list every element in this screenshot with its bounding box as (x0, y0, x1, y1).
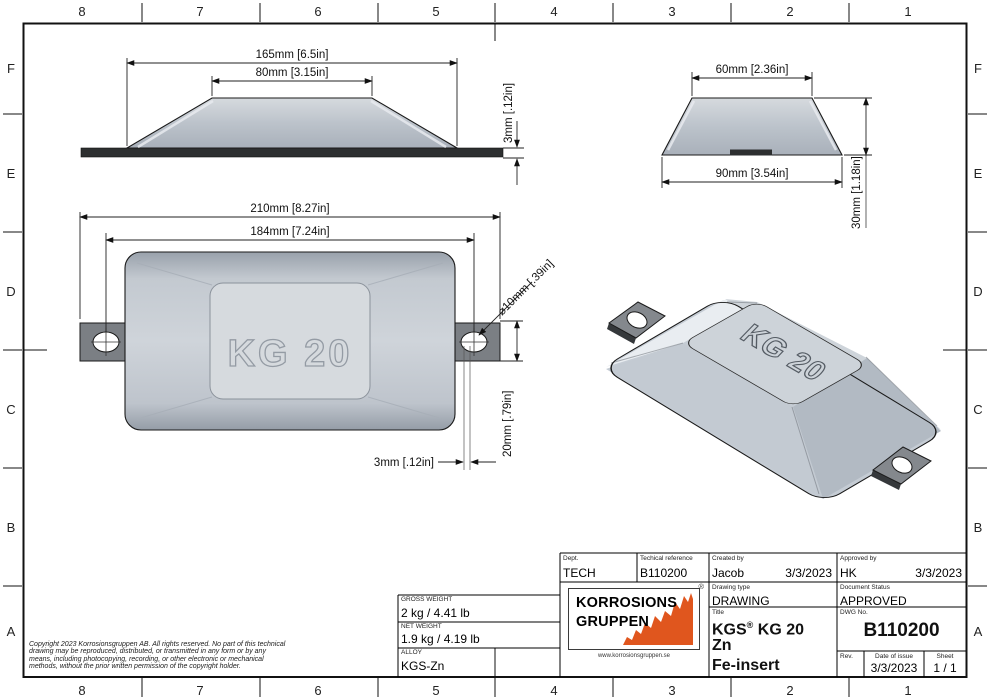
created-date: 3/3/2023 (785, 566, 832, 580)
logo-website: www.korrosionsgruppen.se (568, 653, 700, 659)
grid-row-label: C (6, 402, 15, 417)
alloy-value: KGS-Zn (401, 659, 444, 673)
dwg-no-label: DWG No. (840, 609, 868, 616)
grid-col-label: 8 (78, 683, 85, 698)
dim-side-height: 30mm [1.18in] (851, 156, 863, 229)
doc-status-label: Document Status (840, 584, 890, 591)
alloy-label: ALLOY (401, 649, 422, 656)
side-fe-insert-strip (730, 150, 772, 156)
grid-col-label: 4 (550, 683, 557, 698)
approved-by-label: Approved by (840, 555, 877, 562)
dim-side-top: 60mm [2.36in] (716, 64, 789, 76)
dim-plan-tab: 20mm [.79in] (502, 391, 514, 457)
dim-plan-hole-span: 184mm [7.24in] (250, 226, 329, 238)
dim-plan-overall: 210mm [8.27in] (250, 203, 329, 215)
dim-plan-hole-dia: ⌀10mm [.39in] (496, 258, 556, 318)
title-line3: Fe-insert (712, 656, 780, 676)
grid-row-label: B (7, 520, 16, 535)
grid-col-label: 2 (786, 683, 793, 698)
created-by-value: Jacob (712, 566, 744, 580)
side-view: 60mm [2.36in] 90mm [3.54in] 30mm [1.18in… (662, 64, 872, 229)
grid-row-label: A (974, 624, 983, 639)
front-view: 165mm [6.5in] 80mm [3.15in] 3mm [.12in] (81, 49, 524, 185)
copyright-notice: Copyright 2023 Korrosionsgruppen AB. All… (29, 641, 287, 670)
registered-mark: ® (698, 582, 704, 591)
grid-col-label: 5 (432, 4, 439, 19)
top-view: KG 20 210mm [8.27in] 184mm [7.24in] ⌀10m… (80, 203, 556, 470)
dept-label: Dept. (563, 555, 579, 562)
approved-date: 3/3/2023 (915, 566, 962, 580)
grid-col-label: 1 (904, 4, 911, 19)
tech-ref-value: B110200 (640, 566, 687, 580)
sheet-label: Sheet (925, 653, 965, 660)
date-of-issue-value: 3/3/2023 (865, 661, 923, 675)
logo-text: KORROSIONS GRUPPEN (576, 594, 677, 632)
title-label: Title (712, 609, 724, 616)
rev-label: Rev. (840, 653, 853, 660)
net-weight-label: NET WEIGHT (401, 623, 442, 630)
dim-plan-insert: 3mm [.12in] (374, 457, 434, 469)
front-fe-insert-strip (81, 148, 503, 157)
grid-col-label: 7 (196, 4, 203, 19)
sheet-value: 1 / 1 (925, 661, 965, 675)
date-of-issue-label: Date of issue (865, 653, 923, 660)
grid-row-label: D (973, 284, 982, 299)
grid-col-label: 6 (314, 683, 321, 698)
dim-front-width: 165mm [6.5in] (256, 49, 329, 61)
tech-ref-label: Techical reference (640, 555, 693, 562)
drawing-type-label: Drawing type (712, 584, 750, 591)
gross-weight-value: 2 kg / 4.41 lb (401, 606, 470, 620)
net-weight-value: 1.9 kg / 4.19 lb (401, 632, 480, 646)
grid-col-label: 2 (786, 4, 793, 19)
side-body (662, 98, 842, 155)
created-by-label: Created by (712, 555, 744, 562)
dim-side-bottom: 90mm [3.54in] (716, 168, 789, 180)
grid-row-label: E (974, 166, 983, 181)
plan-engraving: KG 20 (228, 333, 353, 375)
grid-col-label: 7 (196, 683, 203, 698)
grid-col-label: 6 (314, 4, 321, 19)
gross-weight-label: GROSS WEIGHT (401, 596, 452, 603)
grid-row-label: B (974, 520, 983, 535)
dim-front-insert: 3mm [.12in] (503, 83, 515, 143)
dwg-no-value: B110200 (838, 620, 965, 642)
doc-status-value: APPROVED (840, 594, 907, 608)
drawing-type-value: DRAWING (712, 594, 770, 608)
title-line2: Zn (712, 636, 732, 656)
grid-row-label: A (7, 624, 16, 639)
dept-value: TECH (563, 566, 596, 580)
grid-row-label: F (974, 61, 982, 76)
grid-col-label: 5 (432, 683, 439, 698)
grid-col-label: 3 (668, 4, 675, 19)
grid-row-label: E (7, 166, 16, 181)
isometric-view: KG 20 (602, 297, 945, 503)
grid-row-label: C (973, 402, 982, 417)
approved-by-value: HK (840, 566, 857, 580)
grid-col-label: 4 (550, 4, 557, 19)
grid-row-label: F (7, 61, 15, 76)
grid-col-label: 3 (668, 683, 675, 698)
dim-front-top: 80mm [3.15in] (256, 67, 329, 79)
trademark-symbol: ® (747, 620, 754, 630)
grid-row-label: D (6, 284, 15, 299)
drawing-sheet: 8 7 6 5 4 3 2 1 8 7 6 5 4 3 2 1 F E D C … (0, 0, 991, 700)
grid-col-label: 1 (904, 683, 911, 698)
grid-col-label: 8 (78, 4, 85, 19)
company-logo: KORROSIONS GRUPPEN ® (568, 588, 700, 650)
